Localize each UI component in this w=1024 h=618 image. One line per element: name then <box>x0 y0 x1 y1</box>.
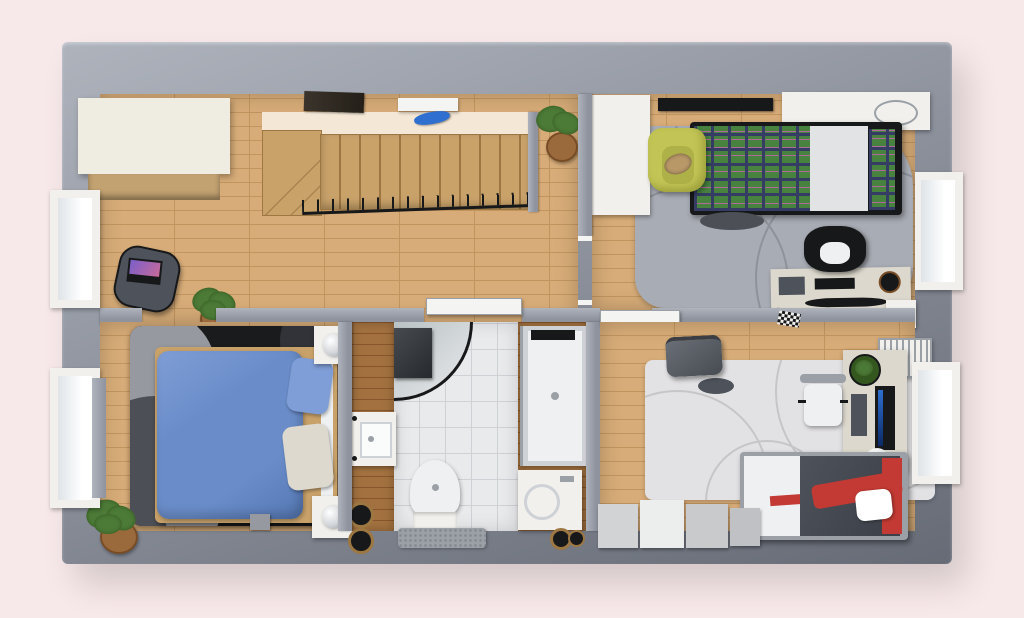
window-glazing <box>58 198 92 300</box>
white-pillow <box>855 488 894 522</box>
sink-vanity <box>350 412 396 466</box>
tv-wall-strip <box>658 98 773 111</box>
blue-bed-frame <box>155 347 337 523</box>
toilet <box>410 460 460 534</box>
cream-pillow <box>281 422 334 491</box>
office-chair-cushion <box>820 242 850 264</box>
window-left-lower <box>50 368 100 508</box>
plaid-duvet <box>694 126 810 211</box>
desk-plant-pot <box>879 271 901 293</box>
staircase <box>262 112 538 214</box>
portrait-monitor <box>875 386 895 450</box>
storage-cabinet <box>598 504 638 548</box>
round-floor-fixture <box>348 528 374 554</box>
window-right-lower <box>912 362 960 484</box>
curtain-panel <box>92 378 106 498</box>
bed-sheet <box>810 126 868 211</box>
yellow-armchair <box>648 128 706 192</box>
wall-shelf <box>398 98 458 111</box>
keyboard <box>815 278 855 290</box>
storage-cabinet <box>730 508 760 546</box>
shower-stall <box>520 326 587 466</box>
blue-duvet <box>157 351 303 519</box>
red-bed <box>740 452 908 540</box>
storage-cabinet <box>686 504 728 548</box>
door-jamb <box>578 300 592 305</box>
plant-leaves <box>94 514 122 534</box>
shower-drain <box>551 392 559 400</box>
window-left-upper <box>50 190 100 308</box>
floorplan-render <box>0 0 1024 618</box>
plaid-pillow <box>868 128 896 211</box>
monitor-screen <box>878 390 883 446</box>
laptop <box>126 258 162 285</box>
wall-vent <box>304 91 365 113</box>
window-glazing <box>58 376 92 500</box>
washing-machine <box>518 470 582 530</box>
chair-leg <box>840 400 848 403</box>
desk-plant <box>849 354 881 386</box>
wall-bed-bath <box>338 322 352 531</box>
mouse-pad <box>851 394 867 436</box>
sink-basin <box>360 422 392 458</box>
window-right-upper <box>915 172 963 290</box>
rug-dark-blob <box>698 378 734 394</box>
bathroom-door-open <box>426 298 522 315</box>
round-floor-fixture <box>568 530 585 547</box>
plant-by-door <box>534 106 584 162</box>
plant-bedroom <box>86 500 142 554</box>
washer-panel <box>560 476 574 482</box>
door-jamb <box>578 236 592 241</box>
white-wardrobe <box>592 95 650 215</box>
laptop-screen <box>129 260 160 277</box>
plaid-bed <box>690 122 902 215</box>
shower-column <box>394 328 432 378</box>
blue-pillow <box>285 356 334 415</box>
storage-cabinet <box>640 500 684 548</box>
toilet-flush-detail <box>432 484 439 491</box>
chair-seat <box>804 384 842 426</box>
window-glazing <box>918 370 952 476</box>
curved-monitor <box>805 297 887 307</box>
hall-wardrobe-front <box>88 174 220 200</box>
bath-mat <box>398 528 486 548</box>
rug-shadow-blob <box>700 212 764 230</box>
hall-wardrobe <box>78 98 230 200</box>
small-stool <box>250 514 270 530</box>
window-glazing <box>921 180 955 282</box>
office-chair <box>804 226 866 272</box>
hall-wardrobe-top <box>78 98 230 174</box>
faucet-handle <box>352 456 357 461</box>
wall-hall-bedroom <box>578 94 592 236</box>
gray-suitcase <box>665 335 723 378</box>
wall-bath-bed <box>586 322 600 531</box>
faucet-handle <box>352 416 357 421</box>
mouse-pad <box>779 277 805 295</box>
white-chair <box>798 374 848 432</box>
chair-leg <box>798 400 806 403</box>
sink-drain <box>368 436 374 442</box>
shower-head-bar <box>531 330 575 340</box>
plant-pot <box>546 132 578 162</box>
chair-back <box>800 374 846 383</box>
washer-drum <box>524 484 560 520</box>
plant-leaves <box>855 360 873 376</box>
